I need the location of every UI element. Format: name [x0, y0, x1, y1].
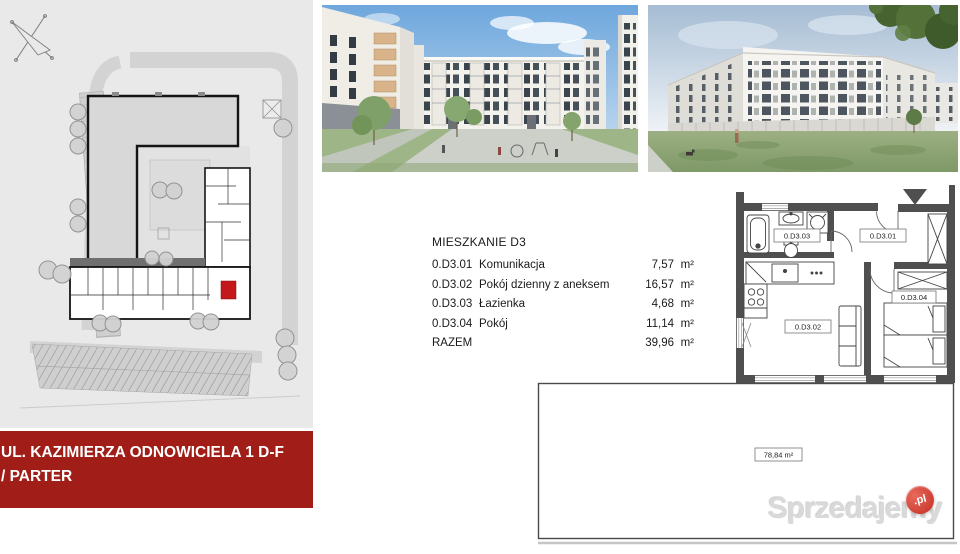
courtyard-ground	[322, 129, 638, 172]
site-plan-drawing	[0, 0, 313, 428]
highlighted-unit	[221, 281, 236, 299]
site-plan	[0, 0, 313, 428]
address-line2: / PARTER	[1, 465, 313, 489]
building-center	[412, 57, 584, 131]
entrance-marker-icon	[903, 189, 927, 205]
watermark-logo: Sprzedajemy .pl	[768, 492, 948, 536]
address-line1: UL. KAZIMIERZA ODNOWICIELA 1 D-F	[1, 441, 313, 465]
room-label-bathroom: 0.D3.03	[784, 232, 810, 241]
room-code: 0.D3.02	[432, 276, 479, 296]
room-code: 0.D3.01	[432, 256, 479, 276]
render-exterior-photo	[648, 5, 958, 172]
room-label-hall: 0.D3.01	[870, 232, 896, 241]
utility-box	[263, 100, 281, 118]
room-code: 0.D3.04	[432, 315, 479, 335]
garden-area-label: 78,84 m²	[764, 451, 794, 460]
building-right-wing	[205, 168, 250, 267]
address-banner: UL. KAZIMIERZA ODNOWICIELA 1 D-F / PARTE…	[0, 431, 313, 508]
total-label: RAZEM	[432, 334, 479, 354]
flyer-page: { "listing": { "title": "MIESZKANIE D3",…	[0, 0, 960, 549]
room-code: 0.D3.03	[432, 295, 479, 315]
render-courtyard-photo	[322, 5, 638, 172]
room-label-bedroom: 0.D3.04	[901, 293, 927, 302]
person-walking	[735, 129, 739, 143]
hall-wardrobe	[928, 214, 947, 264]
sofa	[839, 306, 861, 366]
room-label-living: 0.D3.02	[795, 323, 821, 332]
